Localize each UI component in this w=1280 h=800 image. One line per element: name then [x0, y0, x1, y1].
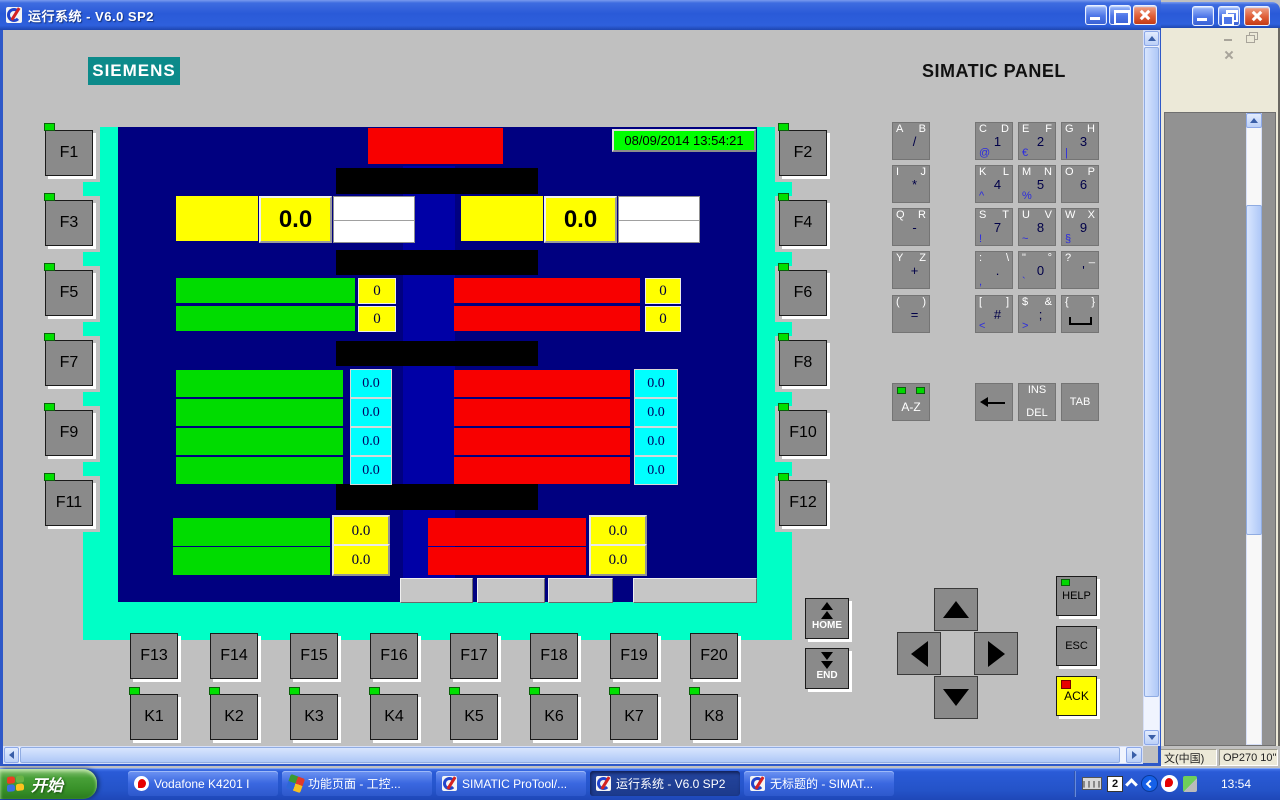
screen-separator-bar [336, 250, 538, 275]
bg-scroll-up-button[interactable] [1246, 113, 1262, 128]
gauge-bar-red [428, 518, 586, 546]
alarm-banner [368, 128, 503, 164]
gauge-value-box: 0.0 [350, 456, 392, 485]
softkey-label: K2 [224, 708, 244, 726]
gauge-value-box: 0.0 [332, 515, 390, 547]
key-led [916, 387, 925, 394]
az-key-label: A-Z [893, 400, 929, 414]
input-method-tray-icon[interactable]: 2 [1107, 776, 1123, 792]
ack-label: ACK [1064, 689, 1089, 703]
char-key-y[interactable]: YZ+ [892, 251, 930, 289]
key-char-symbol: ! [979, 233, 982, 245]
end-label: END [806, 670, 848, 681]
analog-value-left: 0.0 [259, 196, 332, 243]
function-key-f16[interactable]: F16 [370, 633, 418, 679]
taskbar-task-4[interactable]: 无标题的 - SIMAT... [744, 771, 894, 796]
status-field-right [461, 196, 543, 241]
key-led [44, 123, 55, 131]
language-status: 文(中国) [1160, 749, 1217, 766]
key-char-symbol: ` [1022, 276, 1026, 288]
chevron-icon [1146, 780, 1154, 788]
char-key-u[interactable]: UV8~ [1018, 208, 1056, 246]
runtime-window: 运行系统 - V6.0 SP2 SIEMENS SIMATIC PANEL 08… [0, 0, 1161, 766]
siemens-logo: SIEMENS [88, 57, 180, 85]
function-key-label: F2 [794, 144, 813, 162]
gauge-bar-red [454, 370, 630, 397]
task-label: SIMATIC ProTool/... [462, 777, 567, 791]
del-label: DEL [1019, 407, 1055, 419]
key-led [778, 193, 789, 201]
key-char-main: + [893, 263, 929, 278]
right-arrow-key[interactable] [974, 632, 1018, 675]
minimize-button[interactable] [1085, 5, 1107, 25]
vodafone-tray-icon[interactable] [1161, 775, 1178, 792]
unit-field-right [618, 196, 700, 243]
key-char-topleft: { [1065, 296, 1069, 308]
key-char-symbol: € [1022, 147, 1028, 159]
bg-minimize-button[interactable] [1192, 6, 1214, 26]
function-key-f3[interactable]: F3 [45, 200, 93, 246]
bg-close-button[interactable] [1244, 6, 1270, 26]
footer-button[interactable] [400, 578, 473, 603]
key-char-symbol: % [1022, 190, 1032, 202]
softkey-label: K6 [544, 708, 564, 726]
gauge-bar-green [176, 399, 343, 426]
char-key-k[interactable]: KL4^ [975, 165, 1013, 203]
function-key-f17[interactable]: F17 [450, 633, 498, 679]
protool-icon [596, 776, 611, 791]
help-key[interactable]: HELP [1056, 576, 1097, 616]
space-icon [1069, 317, 1092, 325]
taskbar-task-1[interactable]: 功能页面 - 工控... [282, 771, 432, 796]
right-arrow-icon [1132, 751, 1137, 759]
key-led [44, 473, 55, 481]
protool-app-icon [6, 7, 22, 23]
softkey-label: K8 [704, 708, 724, 726]
key-char-symbol: ^ [979, 190, 984, 202]
vertical-scroll-thumb[interactable] [1144, 47, 1159, 697]
help-label: HELP [1062, 590, 1091, 602]
double-up-arrow-icon [821, 611, 833, 619]
key-led [897, 387, 906, 394]
function-key-f14[interactable]: F14 [210, 633, 258, 679]
protool-editor-window: 文(中国) OP270 10" [1158, 0, 1280, 768]
gauge-bar-red [454, 457, 630, 484]
function-key-label: F4 [794, 214, 813, 232]
gauge-value-box: 0 [358, 306, 396, 332]
function-key-label: F3 [60, 214, 79, 232]
softkey-label: K1 [144, 708, 164, 726]
vodafone-icon [134, 776, 149, 791]
horizontal-scroll-thumb[interactable] [20, 747, 1120, 763]
function-key-label: F13 [140, 647, 168, 665]
key-led [209, 687, 220, 695]
key-led [369, 687, 380, 695]
backspace-key[interactable] [975, 383, 1013, 421]
footer-button[interactable] [477, 578, 545, 603]
gauge-bar-green [176, 457, 343, 484]
function-key-f12[interactable]: F12 [779, 480, 827, 526]
char-key-x[interactable]: []#< [975, 295, 1013, 333]
function-key-label: F15 [300, 647, 328, 665]
left-arrow-icon [911, 641, 928, 667]
char-key-o[interactable]: OP6 [1061, 165, 1099, 203]
key-led [44, 403, 55, 411]
function-key-f19[interactable]: F19 [610, 633, 658, 679]
taskbar-task-3[interactable]: 运行系统 - V6.0 SP2 [590, 771, 740, 796]
tray-divider [1074, 771, 1076, 797]
key-char-symbol: , [979, 276, 982, 288]
start-button[interactable]: 开始 [0, 769, 97, 799]
function-key-f8[interactable]: F8 [779, 340, 827, 386]
footer-button[interactable] [548, 578, 613, 603]
gauge-value-box: 0.0 [350, 369, 392, 398]
footer-button[interactable] [633, 578, 757, 603]
maximize-button[interactable] [1109, 5, 1131, 25]
runtime-titlebar[interactable]: 运行系统 - V6.0 SP2 [0, 0, 1161, 30]
scroll-up-button[interactable] [1144, 31, 1159, 46]
softkey-k1[interactable]: K1 [130, 694, 178, 740]
usb-tray-icon[interactable] [1183, 776, 1197, 792]
gauge-value-box: 0.0 [350, 427, 392, 456]
gauge-value-box: 0.0 [634, 398, 678, 427]
function-key-f6[interactable]: F6 [779, 270, 827, 316]
screen-separator-bar [336, 484, 538, 510]
clock[interactable]: 13:54 [1206, 776, 1266, 792]
key-char-symbol: | [1065, 147, 1068, 159]
close-button[interactable] [1133, 5, 1157, 25]
key-led [44, 193, 55, 201]
function-key-label: F20 [700, 647, 728, 665]
function-key-label: F7 [60, 354, 79, 372]
gauge-value-box: 0.0 [332, 544, 390, 576]
down-arrow-icon [943, 689, 969, 706]
char-key-w[interactable]: WX9§ [1061, 208, 1099, 246]
char-key-m[interactable]: MN5% [1018, 165, 1056, 203]
key-char-symbol: < [979, 320, 985, 332]
up-arrow-icon [943, 601, 969, 618]
tab-key[interactable]: TAB [1061, 383, 1099, 421]
flag-blue [7, 784, 15, 792]
task-label: 无标题的 - SIMAT... [770, 775, 873, 792]
gauge-value-box: 0.0 [589, 544, 647, 576]
gauge-bar-red [454, 428, 630, 455]
gauge-bar-green [176, 428, 343, 455]
bg-child-controls [1218, 30, 1278, 44]
char-key-i[interactable]: IJ* [892, 165, 930, 203]
datetime-display: 08/09/2014 13:54:21 [612, 129, 756, 152]
divider [334, 220, 414, 221]
softkey-label: K5 [464, 708, 484, 726]
end-key[interactable]: END [805, 648, 849, 689]
gauge-bar-green [173, 547, 330, 575]
left-arrow-key[interactable] [897, 632, 941, 675]
child-minimize-icon[interactable] [1222, 31, 1236, 43]
softkey-k7[interactable]: K7 [610, 694, 658, 740]
down-arrow-key[interactable] [934, 676, 978, 719]
key-char-main: 6 [1062, 177, 1098, 192]
function-key-f1[interactable]: F1 [45, 130, 93, 176]
desktop: 文(中国) OP270 10" 运行系统 - V6.0 SP2 SIEMENS … [0, 0, 1280, 800]
child-close-icon[interactable] [1222, 49, 1236, 61]
key-char-main: = [893, 307, 929, 322]
softkey-k3[interactable]: K3 [290, 694, 338, 740]
flag-red [7, 776, 15, 784]
gauge-value-box: 0 [358, 278, 396, 304]
child-restore-icon[interactable] [1244, 31, 1258, 43]
backspace-icon [980, 397, 988, 407]
gauge-bar-red [454, 399, 630, 426]
up-arrow-icon [1148, 36, 1156, 41]
device-type-status: OP270 10" [1219, 749, 1278, 766]
char-key-x[interactable]: {} [1061, 295, 1099, 333]
function-key-f10[interactable]: F10 [779, 410, 827, 456]
softkey-label: K4 [384, 708, 404, 726]
function-key-label: F18 [540, 647, 568, 665]
function-key-f5[interactable]: F5 [45, 270, 93, 316]
scroll-left-button[interactable] [4, 747, 19, 763]
home-label: HOME [806, 620, 848, 631]
key-char-symbol: ~ [1022, 233, 1028, 245]
gauge-value-box: 0.0 [634, 369, 678, 398]
function-key-f20[interactable]: F20 [690, 633, 738, 679]
gauge-bar-red [428, 547, 586, 575]
esc-key[interactable]: ESC [1056, 626, 1097, 666]
scroll-down-button[interactable] [1144, 730, 1159, 745]
gauge-bar-green [176, 278, 355, 303]
softkey-k5[interactable]: K5 [450, 694, 498, 740]
char-key-q[interactable]: QR- [892, 208, 930, 246]
function-key-label: F19 [620, 647, 648, 665]
softkey-k4[interactable]: K4 [370, 694, 418, 740]
function-key-label: F14 [220, 647, 248, 665]
az-shift-key[interactable]: A-Z [892, 383, 930, 421]
function-key-label: F17 [460, 647, 488, 665]
char-key-a[interactable]: AB/ [892, 122, 930, 160]
bezel-right-inner [757, 127, 775, 602]
function-key-label: F8 [794, 354, 813, 372]
key-led [289, 687, 300, 695]
function-key-label: F5 [60, 284, 79, 302]
key-led [778, 403, 789, 411]
network-tray-icon[interactable] [1141, 775, 1158, 792]
key-led [778, 333, 789, 341]
taskbar-task-0[interactable]: Vodafone K4201 I [128, 771, 278, 796]
key-led [778, 473, 789, 481]
status-field-left [176, 196, 258, 241]
screen-separator-bar [336, 168, 538, 194]
bg-restore-button[interactable] [1218, 6, 1240, 26]
backspace-icon [986, 402, 1005, 404]
key-led [44, 333, 55, 341]
function-key-f11[interactable]: F11 [45, 480, 93, 526]
char-key-x[interactable]: $&;> [1018, 295, 1056, 333]
gauge-bar-green [176, 306, 355, 331]
key-led [689, 687, 700, 695]
alarm-led [1061, 680, 1071, 689]
key-char-main: ' [1062, 263, 1098, 278]
down-arrow-icon [1148, 735, 1156, 740]
function-key-f4[interactable]: F4 [779, 200, 827, 246]
gauge-bar-green [173, 518, 330, 546]
keyboard-tray-icon[interactable] [1082, 777, 1102, 790]
home-key[interactable]: HOME [805, 598, 849, 639]
function-key-label: F12 [789, 494, 817, 512]
protool-icon [750, 776, 765, 791]
function-key-f7[interactable]: F7 [45, 340, 93, 386]
task-label: Vodafone K4201 I [154, 777, 249, 791]
esc-label: ESC [1065, 640, 1088, 652]
left-arrow-icon [9, 751, 14, 759]
char-key-x[interactable]: ?_' [1061, 251, 1099, 289]
ack-key[interactable]: ACK [1056, 676, 1097, 716]
gauge-bar-red [454, 278, 640, 303]
key-char-symbol: > [1022, 320, 1028, 332]
runtime-title: 运行系统 - V6.0 SP2 [28, 6, 154, 25]
start-label: 开始 [31, 772, 63, 796]
function-key-f2[interactable]: F2 [779, 130, 827, 176]
function-key-label: F10 [789, 424, 817, 442]
function-key-label: F6 [794, 284, 813, 302]
protool-icon [442, 776, 457, 791]
key-char-symbol: @ [979, 147, 990, 159]
key-led [529, 687, 540, 695]
gauge-value-box: 0 [645, 278, 681, 304]
gauge-bar-green [176, 370, 343, 397]
char-key-e[interactable]: EF2€ [1018, 122, 1056, 160]
key-led [1061, 579, 1070, 586]
char-key-c[interactable]: CD1@ [975, 122, 1013, 160]
analog-value-right: 0.0 [544, 196, 617, 243]
up-arrow-key[interactable] [934, 588, 978, 631]
key-led [609, 687, 620, 695]
ins-label: INS [1019, 384, 1055, 396]
wincc-icon [286, 774, 305, 793]
key-led [778, 123, 789, 131]
key-char-main: - [893, 220, 929, 235]
function-key-label: F9 [60, 424, 79, 442]
right-arrow-icon [988, 641, 1005, 667]
function-key-f18[interactable]: F18 [530, 633, 578, 679]
char-key-g[interactable]: GH3| [1061, 122, 1099, 160]
task-label: 运行系统 - V6.0 SP2 [616, 775, 725, 792]
function-key-label: F16 [380, 647, 408, 665]
double-down-arrow-icon [821, 661, 833, 669]
function-key-label: F1 [60, 144, 79, 162]
function-key-f13[interactable]: F13 [130, 633, 178, 679]
double-up-arrow-icon [821, 602, 833, 610]
ins-del-key[interactable]: INSDEL [1018, 383, 1056, 421]
gauge-value-box: 0.0 [350, 398, 392, 427]
char-key-s[interactable]: ST7! [975, 208, 1013, 246]
unit-field-left [333, 196, 415, 243]
char-key-x[interactable]: ()= [892, 295, 930, 333]
key-char-main: / [893, 134, 929, 149]
gauge-value-box: 0.0 [634, 456, 678, 485]
function-key-label: F11 [56, 494, 82, 512]
task-label: 功能页面 - 工控... [308, 775, 401, 792]
gauge-bar-red [454, 306, 640, 331]
function-key-f15[interactable]: F15 [290, 633, 338, 679]
gauge-value-box: 0 [645, 306, 681, 332]
bg-scroll-thumb[interactable] [1246, 205, 1262, 535]
bezel-left-inner [100, 127, 118, 602]
windows-flag-icon [7, 775, 26, 794]
tab-label: TAB [1062, 396, 1098, 408]
show-hidden-icons-button[interactable] [1125, 778, 1138, 791]
char-key-x[interactable]: :\., [975, 251, 1013, 289]
taskbar-task-2[interactable]: SIMATIC ProTool/... [436, 771, 586, 796]
softkey-label: K7 [624, 708, 644, 726]
screen-separator-bar [336, 341, 538, 366]
key-led [44, 263, 55, 271]
softkey-k8[interactable]: K8 [690, 694, 738, 740]
gauge-value-box: 0.0 [589, 515, 647, 547]
function-key-f9[interactable]: F9 [45, 410, 93, 456]
bezel-bottom [83, 602, 792, 640]
key-char-symbol: § [1065, 233, 1071, 245]
gauge-value-box: 0.0 [634, 427, 678, 456]
softkey-k2[interactable]: K2 [210, 694, 258, 740]
double-down-arrow-icon [821, 652, 833, 660]
key-char-main: * [893, 177, 929, 192]
key-char-topright: } [1091, 296, 1095, 308]
char-key-x[interactable]: "°0` [1018, 251, 1056, 289]
softkey-k6[interactable]: K6 [530, 694, 578, 740]
divider [619, 220, 699, 221]
flag-yellow [16, 783, 24, 791]
taskbar: 开始 Vodafone K4201 I功能页面 - 工控...SIMATIC P… [0, 768, 1280, 800]
key-led [449, 687, 460, 695]
scroll-right-button[interactable] [1126, 747, 1142, 763]
key-led [129, 687, 140, 695]
flag-green [16, 775, 24, 783]
simatic-panel-label: SIMATIC PANEL [922, 61, 1066, 82]
softkey-label: K3 [304, 708, 324, 726]
key-led [778, 263, 789, 271]
up-arrow-icon [1250, 118, 1258, 123]
